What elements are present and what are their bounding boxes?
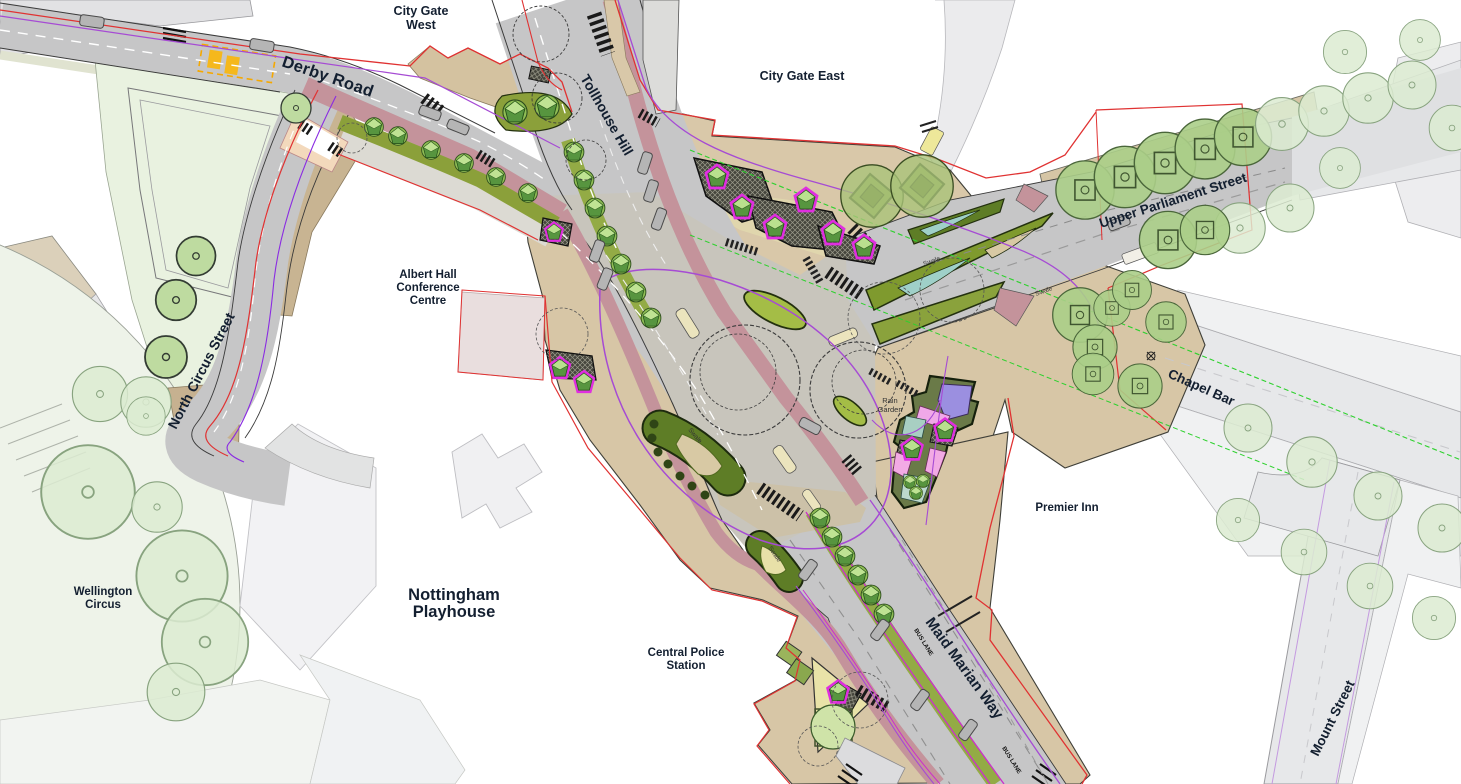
svg-text:City Gate: City Gate <box>394 4 449 18</box>
svg-text:Centre: Centre <box>410 295 446 307</box>
svg-text:Albert Hall: Albert Hall <box>399 269 457 281</box>
svg-text:Garden: Garden <box>877 405 902 414</box>
svg-text:Premier Inn: Premier Inn <box>1035 502 1098 514</box>
svg-text:Circus: Circus <box>85 599 121 611</box>
svg-text:Conference: Conference <box>396 282 459 294</box>
svg-text:Playhouse: Playhouse <box>413 603 496 621</box>
svg-text:Nottingham: Nottingham <box>408 586 500 604</box>
svg-text:City Gate East: City Gate East <box>760 69 846 83</box>
svg-text:Central Police: Central Police <box>648 647 725 659</box>
svg-text:Wellington: Wellington <box>74 586 133 598</box>
svg-text:West: West <box>406 18 436 32</box>
svg-text:Station: Station <box>667 660 706 672</box>
svg-text:Rain: Rain <box>882 396 897 405</box>
